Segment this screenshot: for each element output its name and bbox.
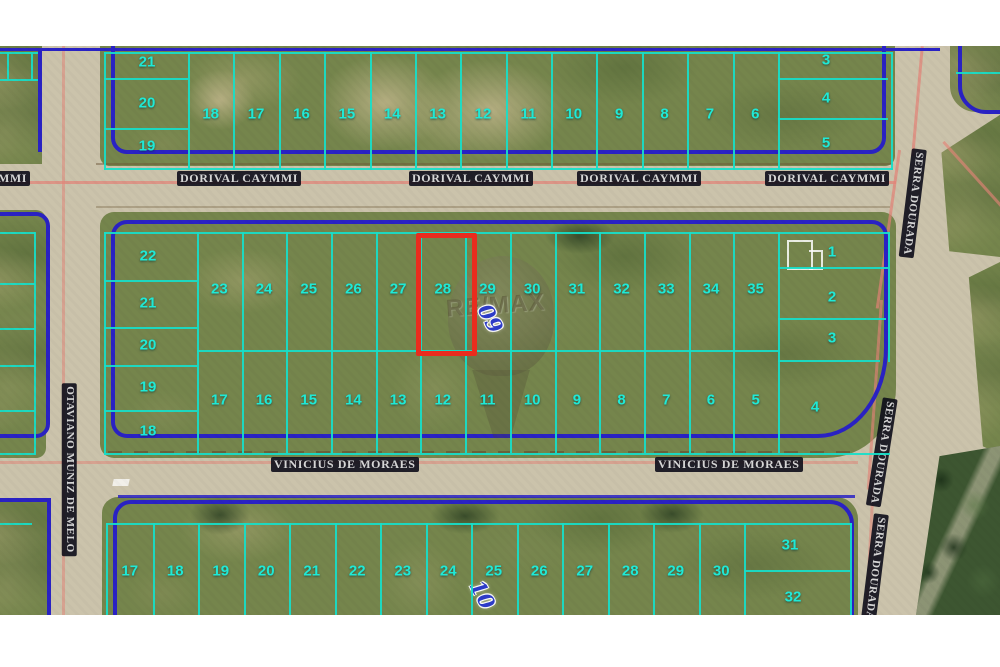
- lot-line: [555, 232, 557, 453]
- lot-line: [891, 52, 893, 170]
- lot-line: [34, 232, 36, 455]
- lot-number: 14: [345, 392, 362, 409]
- lot-line: [380, 523, 382, 615]
- lot-line: [596, 52, 598, 170]
- lot-number: 19: [212, 563, 229, 580]
- lot-line: [104, 52, 893, 54]
- lot-number: 30: [524, 281, 541, 298]
- parcel-boundary-line: [118, 495, 855, 498]
- lot-line: [689, 232, 691, 453]
- lot-number: 24: [440, 563, 457, 580]
- lot-line: [744, 523, 746, 615]
- street-label-otaviano-muniz-de-melo: OTAVIANO MUNIZ DE MELO: [62, 383, 77, 556]
- block-border-west: [38, 48, 42, 152]
- lot-number: 28: [622, 563, 639, 580]
- road-edge: [96, 206, 890, 208]
- lot-line: [0, 365, 35, 367]
- block-border-west-bottom: [47, 498, 51, 615]
- lot-line: [0, 283, 35, 285]
- lot-line: [104, 78, 188, 80]
- lot-line: [153, 523, 155, 615]
- lot-line: [653, 523, 655, 615]
- lot-line: [744, 570, 850, 572]
- lot-line: [0, 453, 35, 455]
- highlight-lot-outline: [416, 233, 477, 356]
- lot-number: 15: [300, 392, 317, 409]
- lot-line: [778, 318, 886, 320]
- lot-number: 22: [140, 248, 157, 265]
- lot-line: [506, 52, 508, 170]
- lot-number: 14: [384, 106, 401, 123]
- street-label-dorival-caymmi: DORIVAL CAYMMI: [409, 171, 533, 186]
- lot-line: [289, 523, 291, 615]
- lot-line: [778, 267, 888, 269]
- lot-number: 16: [256, 392, 273, 409]
- lot-line: [324, 52, 326, 170]
- lot-line: [104, 232, 106, 455]
- lot-line: [233, 52, 235, 170]
- lot-line: [104, 232, 890, 234]
- lot-number: 20: [258, 563, 275, 580]
- lot-number: 18: [140, 423, 157, 440]
- lot-line: [733, 232, 735, 453]
- lot-line: [888, 232, 890, 362]
- street-label-vinicius-de-moraes: VINICIUS DE MORAES: [271, 457, 419, 472]
- lot-number: 32: [613, 281, 630, 298]
- lot-number: 10: [565, 106, 582, 123]
- lot-line: [31, 52, 33, 80]
- lot-line: [608, 523, 610, 615]
- lot-number: 13: [429, 106, 446, 123]
- lot-line: [733, 52, 735, 170]
- lot-number: 11: [520, 106, 536, 123]
- lot-line: [104, 280, 197, 282]
- block-border-west-bottom: [0, 498, 50, 502]
- lot-number: 21: [139, 54, 156, 71]
- lot-number: 19: [139, 138, 156, 155]
- lot-number: 12: [434, 392, 451, 409]
- lot-number: 18: [202, 106, 219, 123]
- lot-line: [106, 523, 852, 525]
- lot-number: 12: [475, 106, 492, 123]
- lot-number: 2: [828, 289, 836, 306]
- lot-line: [197, 232, 199, 455]
- lot-line: [104, 52, 106, 170]
- lot-number: 35: [747, 281, 764, 298]
- lot-line: [376, 232, 378, 453]
- lot-number: 15: [339, 106, 356, 123]
- lot-line: [104, 327, 197, 329]
- lot-number: 3: [828, 330, 836, 347]
- lot-number: 5: [751, 392, 759, 409]
- lot-number: 23: [394, 563, 411, 580]
- lot-number: 4: [822, 90, 830, 107]
- lot-line: [104, 453, 890, 455]
- lot-number: 17: [121, 563, 138, 580]
- grass-strip-right: [962, 262, 1000, 454]
- lot-number: 25: [300, 281, 317, 298]
- lot-line: [471, 523, 473, 615]
- lot-line: [7, 52, 9, 80]
- lot-line: [517, 523, 519, 615]
- lot-number: 3: [822, 52, 830, 69]
- block-border-west-middle: [0, 212, 50, 438]
- lot-number: 31: [782, 537, 799, 554]
- lot-number: 7: [706, 106, 714, 123]
- lot-line: [778, 52, 780, 170]
- median-triangle: [935, 112, 1000, 257]
- lot-number: 5: [822, 135, 830, 152]
- lot-number: 27: [390, 281, 407, 298]
- lot-line: [106, 523, 108, 615]
- lot-line: [599, 232, 601, 453]
- lot-line: [0, 52, 38, 54]
- lot-line: [460, 52, 462, 170]
- lot-line: [104, 168, 893, 170]
- lot-line: [687, 52, 689, 170]
- lot-number: 22: [349, 563, 366, 580]
- street-label-dorival-caymmi: DORIVAL CAYMMI: [577, 171, 701, 186]
- lot-line: [642, 52, 644, 170]
- lot-line: [188, 52, 190, 170]
- lot-line: [104, 410, 197, 412]
- lot-number: 23: [211, 281, 228, 298]
- lot-number: 31: [569, 281, 586, 298]
- lot-number: 29: [667, 563, 684, 580]
- lot-number: 29: [479, 281, 496, 298]
- lot-number: 11: [480, 392, 496, 409]
- lot-line: [335, 523, 337, 615]
- lot-number: 30: [713, 563, 730, 580]
- lot-line: [778, 118, 888, 120]
- lot-number: 10: [524, 392, 541, 409]
- lot-number: 8: [617, 392, 625, 409]
- letterbox-top: [0, 0, 1000, 46]
- lot-line: [562, 523, 564, 615]
- lot-line: [244, 523, 246, 615]
- lot-number: 33: [658, 281, 675, 298]
- lot-number: 4: [811, 399, 819, 416]
- street-label-vinicius-de-moraes: VINICIUS DE MORAES: [655, 457, 803, 472]
- lot-number: 9: [615, 106, 623, 123]
- street-label-dorival-caymmi: DORIVAL CAYMMI: [177, 171, 301, 186]
- street-label-serra-dourada: SERRA DOURADA: [899, 148, 927, 258]
- lot-number: 17: [248, 106, 265, 123]
- letterbox-bottom: [0, 615, 1000, 667]
- lot-number: 6: [751, 106, 759, 123]
- lot-line: [331, 232, 333, 453]
- lot-number: 32: [785, 589, 802, 606]
- lot-number: 16: [293, 106, 310, 123]
- lot-line: [426, 523, 428, 615]
- lot-number: 26: [531, 563, 548, 580]
- lot-number: 34: [703, 281, 720, 298]
- lot-number: 21: [140, 295, 157, 312]
- lot-line: [510, 232, 512, 453]
- lot-line: [778, 78, 888, 80]
- lot-line: [104, 365, 197, 367]
- lot-line: [197, 350, 778, 352]
- lot-line: [778, 360, 880, 362]
- lot-number: 27: [576, 563, 593, 580]
- block-west-bottom-grass: [0, 502, 48, 615]
- street-label-dorival-caymmi: DORIVAL CAYMMI: [765, 171, 889, 186]
- street-label-dorival-caymmi: DORIVAL CAYMMI: [0, 171, 30, 186]
- road-marking: [112, 479, 129, 486]
- lot-number: 9: [573, 392, 581, 409]
- road-centerline: [911, 46, 923, 156]
- parcel-map: RE/MAX 09 10 DORIVAL CAYMMI DORIVAL CAYM…: [0, 0, 1000, 667]
- lot-number: 19: [140, 379, 157, 396]
- lot-number: 20: [139, 95, 156, 112]
- lot-number: 6: [707, 392, 715, 409]
- lot-number: 26: [345, 281, 362, 298]
- lot-number: 8: [660, 106, 668, 123]
- trees-bottom-right: [916, 446, 1000, 615]
- lot-line: [370, 52, 372, 170]
- lot-line: [956, 72, 1000, 74]
- lot-line: [0, 523, 32, 525]
- lot-number: 21: [303, 563, 320, 580]
- lot-line: [279, 52, 281, 170]
- lot-number: 18: [167, 563, 184, 580]
- lot-number: 25: [485, 563, 502, 580]
- lot-line: [242, 232, 244, 453]
- lot-line: [0, 232, 35, 234]
- map-area: RE/MAX 09 10 DORIVAL CAYMMI DORIVAL CAYM…: [0, 0, 1000, 667]
- lot-line: [699, 523, 701, 615]
- lot-line: [0, 79, 38, 81]
- lot-number: 17: [211, 392, 228, 409]
- lot-line: [198, 523, 200, 615]
- lot-line: [551, 52, 553, 170]
- street-label-serra-dourada: SERRA DOURADA: [861, 513, 889, 623]
- lot-line: [104, 128, 188, 130]
- road-edge: [96, 163, 893, 165]
- lot-line: [286, 232, 288, 453]
- lot-number: 7: [662, 392, 670, 409]
- lot-line: [644, 232, 646, 453]
- lot-number: 20: [140, 337, 157, 354]
- lot-number: 24: [256, 281, 273, 298]
- lot-line: [0, 410, 35, 412]
- lot-line: [415, 52, 417, 170]
- lot-line: [0, 328, 35, 330]
- lot-number: 1: [828, 244, 836, 261]
- lot-line: [850, 523, 852, 615]
- lot-line: [778, 232, 780, 453]
- lot-number: 13: [390, 392, 407, 409]
